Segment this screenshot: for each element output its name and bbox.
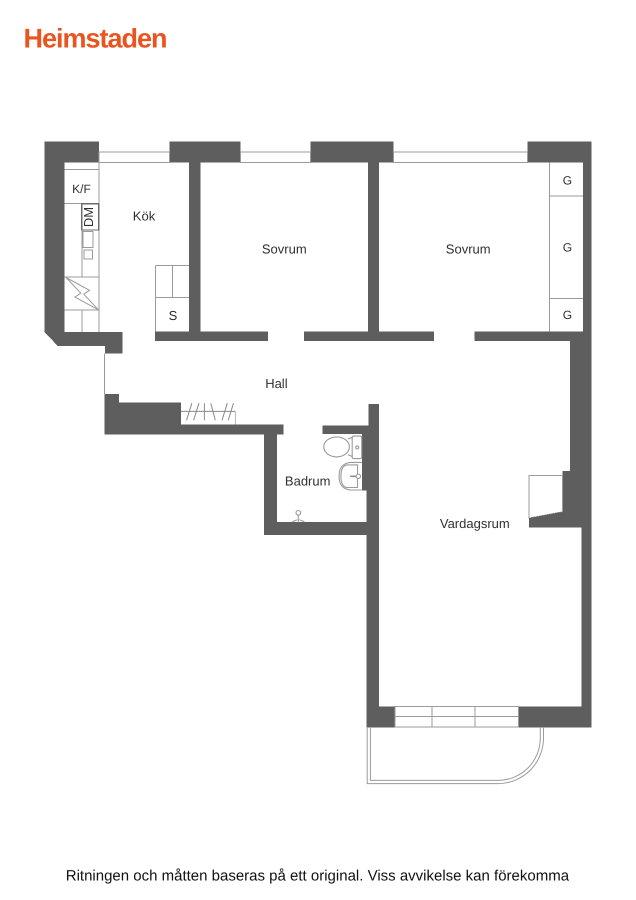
svg-text:G: G [563, 174, 572, 188]
svg-text:G: G [563, 308, 572, 322]
svg-text:DM: DM [81, 207, 96, 227]
svg-text:S: S [169, 308, 178, 323]
svg-text:K/F: K/F [72, 182, 91, 196]
svg-text:Heimstaden: Heimstaden [24, 23, 167, 53]
svg-text:G: G [563, 241, 572, 255]
svg-text:Ritningen och måtten baseras p: Ritningen och måtten baseras på ett orig… [66, 868, 570, 885]
svg-text:Kök: Kök [133, 208, 156, 223]
svg-text:Badrum: Badrum [285, 474, 331, 489]
svg-text:Sovrum: Sovrum [262, 241, 307, 256]
svg-text:Hall: Hall [265, 376, 288, 391]
svg-text:Sovrum: Sovrum [446, 241, 491, 256]
svg-text:Vardagsrum: Vardagsrum [440, 516, 510, 531]
